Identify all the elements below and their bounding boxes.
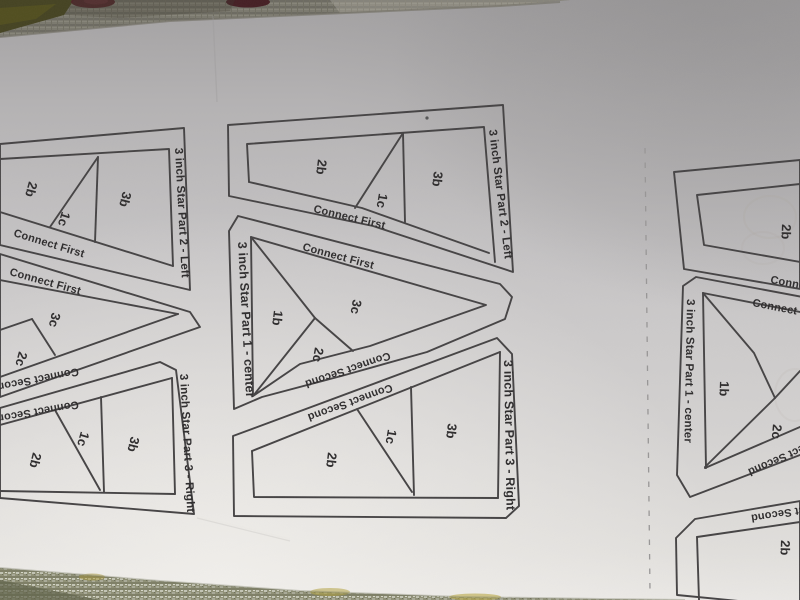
svg-text:3 inch Star Part 3 - Right: 3 inch Star Part 3 - Right (501, 360, 518, 511)
svg-text:1c: 1c (374, 192, 391, 209)
svg-text:1c: 1c (383, 428, 400, 445)
svg-text:3b: 3b (443, 423, 460, 440)
svg-text:2c: 2c (310, 346, 327, 363)
svg-text:1b: 1b (269, 310, 286, 327)
svg-text:1b: 1b (716, 381, 732, 397)
svg-text:2b: 2b (313, 159, 330, 176)
svg-text:3b: 3b (429, 171, 446, 188)
svg-text:3c: 3c (348, 298, 365, 315)
svg-text:3 inch Star Part 1 - center: 3 inch Star Part 1 - center (681, 299, 696, 444)
svg-text:2b: 2b (777, 540, 793, 556)
svg-text:2b: 2b (778, 224, 794, 240)
svg-text:2c: 2c (769, 424, 785, 440)
svg-text:2b: 2b (323, 452, 340, 469)
